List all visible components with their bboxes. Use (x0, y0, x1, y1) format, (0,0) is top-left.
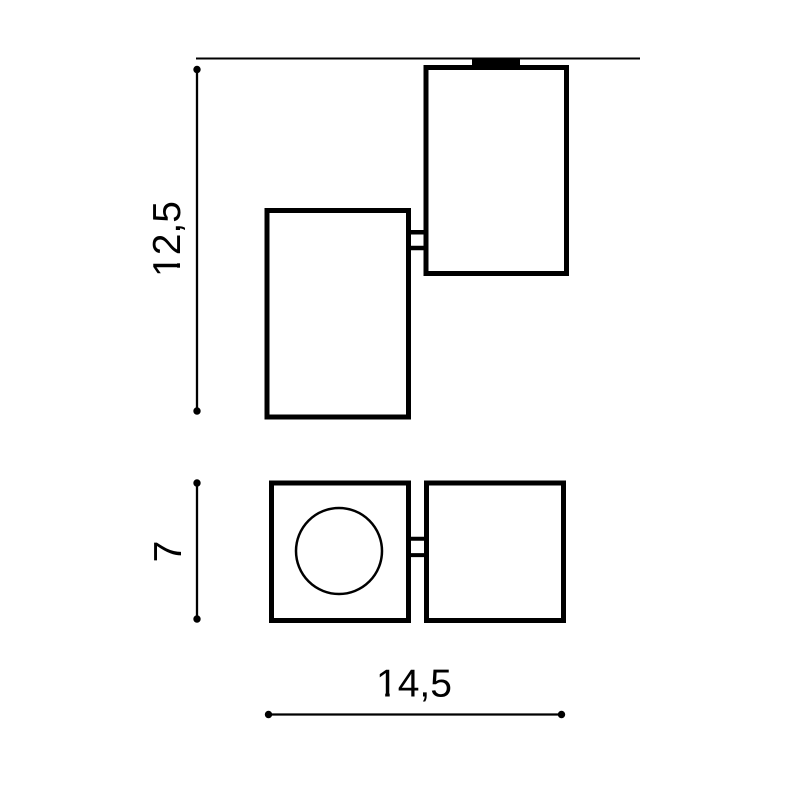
svg-text:12,5: 12,5 (146, 201, 189, 277)
svg-text:7: 7 (147, 541, 190, 563)
svg-text:14,5: 14,5 (376, 663, 452, 706)
